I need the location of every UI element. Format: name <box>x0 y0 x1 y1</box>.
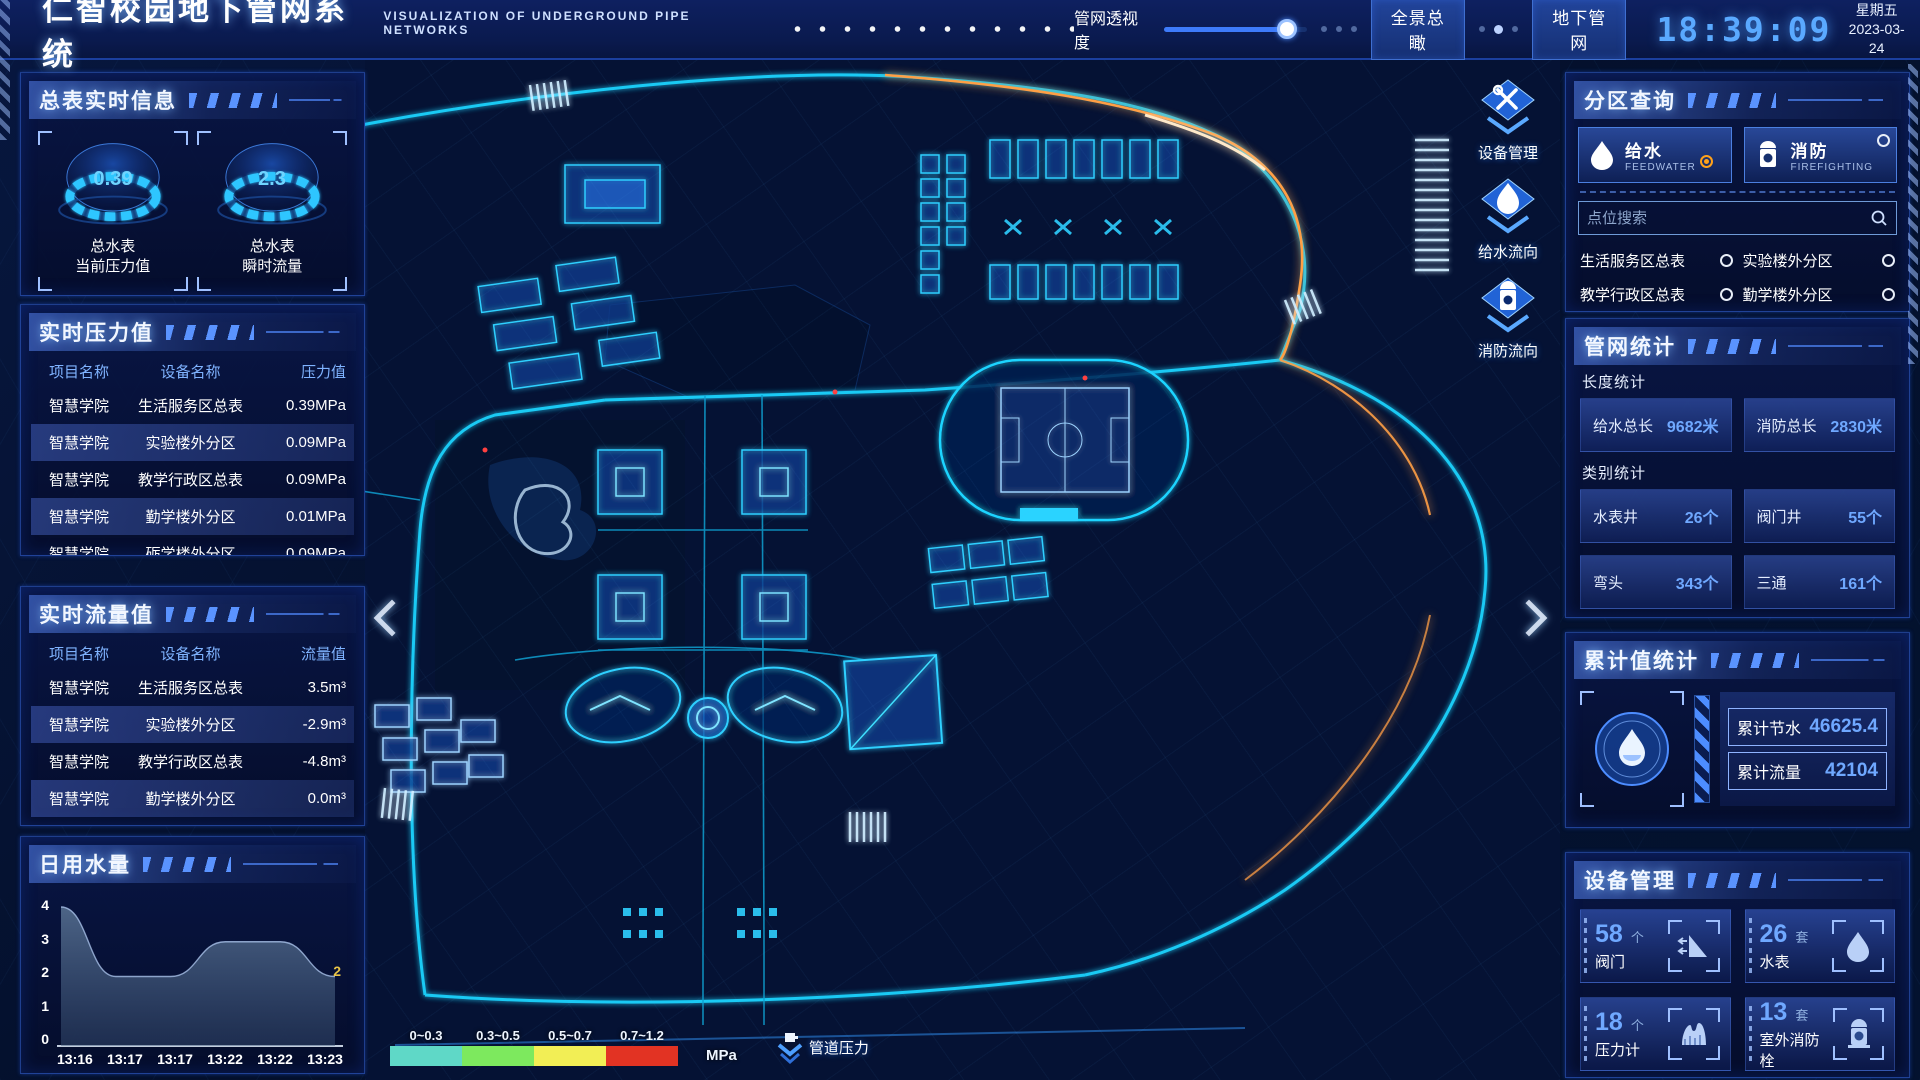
hazard-stripe-decoration <box>1694 695 1710 803</box>
last-point-label: 2 <box>333 963 341 979</box>
waterdrop-icon <box>1476 177 1540 235</box>
table-row: 智慧学院砺学楼外分区0.09MPa <box>31 535 354 556</box>
device-card-pressure-gauges: 18个 压力计 <box>1580 997 1731 1071</box>
cumulative-stats-panel: 累计值统计 累计节水46625.4 累计流量42104 <box>1565 632 1910 828</box>
slider-fill <box>1164 27 1287 32</box>
cumulative-water-saved: 累计节水46625.4 <box>1728 708 1887 746</box>
section-title: 设备管理 <box>1584 865 1676 895</box>
device-management-panel: 设备管理 58个 阀门 26套 水表 18个 压力计 <box>1565 852 1910 1078</box>
length-stats-label: 长度统计 <box>1582 371 1893 392</box>
radio-unselected-icon[interactable] <box>1882 288 1895 301</box>
legend-unit: MPa <box>706 1047 737 1064</box>
pressure-legend: 0~0.3 0.3~0.5 0.5~0.7 0.7~1.2 MPa 管道压力 <box>390 1028 869 1066</box>
zone-item[interactable]: 宿舍区泵房 <box>1743 311 1896 312</box>
waterdrop-icon <box>1589 140 1615 170</box>
map-fire-flow-button[interactable]: 消防流向 <box>1462 276 1554 361</box>
panorama-overview-button[interactable]: 全景总瞰 <box>1371 0 1465 60</box>
svg-text:2.3: 2.3 <box>258 168 286 190</box>
daily-water-panel: 日用水量 43 21 0 2 13:1613:17 13:1713:22 <box>20 836 365 1074</box>
table-row: 智慧学院生活服务区总表3.5m³ <box>31 669 354 706</box>
dashed-divider <box>1580 191 1895 193</box>
gauge-label: 总水表瞬时流量 <box>197 237 347 277</box>
device-card-valves: 58个 阀门 <box>1580 909 1731 983</box>
slashes-decoration <box>189 93 277 108</box>
radio-unselected-icon[interactable] <box>1882 254 1895 267</box>
table-row: 智慧学院勤学楼外分区0.0m³ <box>31 780 354 817</box>
search-icon[interactable] <box>1870 209 1888 227</box>
app-subtitle: VISUALIZATION OF UNDERGROUND PIPE NETWOR… <box>383 9 767 37</box>
zone-list: 生活服务区总表 实验楼外分区 教学行政区总表 勤学楼外分区 砺学楼外分区 宿舍区… <box>1580 243 1895 312</box>
table-row: 智慧学院勤学楼外分区0.01MPa <box>31 498 354 535</box>
table-row: 智慧学院教学行政区总表-4.8m³ <box>31 743 354 780</box>
waterdrop-circle-icon <box>1590 707 1674 791</box>
section-title: 日用水量 <box>39 849 131 879</box>
slider-handle[interactable] <box>1277 19 1297 39</box>
realtime-pressure-panel: 实时压力值 项目名称 设备名称 压力值 智慧学院生活服务区总表0.39MPa 智… <box>20 304 365 556</box>
radio-unselected-icon[interactable] <box>1720 288 1733 301</box>
table-row: 智慧学院实验楼外分区0.09MPa <box>31 424 354 461</box>
pressure-meter-chevron-icon <box>777 1032 803 1066</box>
stat-card: 弯头343个 <box>1580 555 1732 609</box>
area-chart-canvas <box>57 897 343 1047</box>
stat-card: 水表井26个 <box>1580 489 1732 543</box>
section-title: 累计值统计 <box>1584 645 1699 675</box>
daily-water-chart: 43 21 0 2 <box>27 897 354 1047</box>
gauge-label: 总水表当前压力值 <box>38 237 188 277</box>
campus-map-canvas <box>365 60 1560 1080</box>
gauge-flow: 2.3 总水表瞬时流量 <box>197 131 347 291</box>
table-row: 智慧学院生活服务区总表0.39MPa <box>31 387 354 424</box>
edge-decoration <box>1908 64 1918 364</box>
weekday: 星期五 <box>1847 1 1906 20</box>
x-axis: 13:1613:17 13:1713:22 13:2213:23 <box>57 1051 343 1067</box>
category-stats-label: 类别统计 <box>1582 462 1893 483</box>
gauge-pressure: 0.39 总水表当前压力值 <box>38 131 188 291</box>
gauge-icon: 0.39 <box>43 135 183 235</box>
device-card-water-meters: 26套 水表 <box>1745 909 1896 983</box>
tab-firefighting[interactable]: 消防 FIREFIGHTING <box>1744 127 1898 183</box>
dot-separator <box>1479 25 1518 34</box>
water-meter-icon <box>1841 929 1875 963</box>
legend-range: 0~0.3 <box>390 1028 462 1066</box>
legend-range: 0.5~0.7 <box>534 1028 606 1066</box>
section-title: 实时压力值 <box>39 317 154 347</box>
pipe-opacity-slider[interactable] <box>1164 27 1307 32</box>
section-header: 总表实时信息 <box>29 81 356 119</box>
section-title: 总表实时信息 <box>39 85 177 115</box>
clock: 18:39:09 <box>1656 10 1831 49</box>
zone-item[interactable]: 教学行政区总表 <box>1580 277 1733 311</box>
svg-text:0.39: 0.39 <box>93 168 132 190</box>
map-device-management-button[interactable]: 设备管理 <box>1462 78 1554 163</box>
section-title: 管网统计 <box>1584 331 1676 361</box>
app-title: 仁智校园地下管网系统 <box>42 0 369 74</box>
pipe-opacity-label: 管网透视度 <box>1074 5 1150 53</box>
stat-card: 给水总长9682米 <box>1580 398 1732 452</box>
dot-separator <box>1321 26 1357 32</box>
hydrant-icon <box>1476 276 1540 334</box>
wrench-icon <box>1476 78 1540 136</box>
hydrant-icon <box>1755 140 1781 170</box>
date-box: 星期五 2023-03-24 <box>1847 1 1906 58</box>
gauge-icon: 2.3 <box>202 135 342 235</box>
brand: 仁智校园地下管网系统 VISUALIZATION OF UNDERGROUND … <box>42 0 767 74</box>
search-box[interactable] <box>1578 201 1897 235</box>
table-row: 智慧学院砺学楼外分区2.3m³ <box>31 817 354 826</box>
pressure-gauge-icon <box>1677 1017 1711 1051</box>
water-saving-icon-card <box>1580 691 1684 807</box>
zone-query-panel: 分区查询 给水 FEEDWATER 消防 FIREFIGHTING <box>1565 72 1910 312</box>
realtime-flow-panel: 实时流量值 项目名称 设备名称 流量值 智慧学院生活服务区总表3.5m³ 智慧学… <box>20 586 365 826</box>
radio-selected-icon[interactable] <box>1700 155 1713 168</box>
zone-item[interactable]: 生活服务区总表 <box>1580 243 1733 277</box>
top-bar: 仁智校园地下管网系统 VISUALIZATION OF UNDERGROUND … <box>0 0 1920 60</box>
legend-range: 0.7~1.2 <box>606 1028 678 1066</box>
pipe-pressure-toggle[interactable]: 管道压力 <box>777 1032 869 1066</box>
flow-table: 项目名称 设备名称 流量值 智慧学院生活服务区总表3.5m³ 智慧学院实验楼外分… <box>31 637 354 826</box>
table-row: 智慧学院实验楼外分区-2.9m³ <box>31 706 354 743</box>
meter-realtime-panel: 总表实时信息 0.39 总水表当前压力值 <box>20 72 365 296</box>
tab-feedwater[interactable]: 给水 FEEDWATER <box>1578 127 1732 183</box>
stat-card: 三通161个 <box>1744 555 1896 609</box>
cumulative-values: 累计节水46625.4 累计流量42104 <box>1720 692 1895 806</box>
zone-item[interactable]: 勤学楼外分区 <box>1743 277 1896 311</box>
valve-icon <box>1677 929 1711 963</box>
device-card-outdoor-hydrants: 13套 室外消防栓 <box>1745 997 1896 1071</box>
y-axis: 43 21 0 <box>27 897 57 1047</box>
cumulative-flow: 累计流量42104 <box>1728 752 1887 790</box>
section-title: 实时流量值 <box>39 599 154 629</box>
outdoor-hydrant-icon <box>1842 1017 1876 1051</box>
radio-unselected-icon[interactable] <box>1720 254 1733 267</box>
zone-item[interactable]: 砺学楼外分区 <box>1580 311 1733 312</box>
section-title: 分区查询 <box>1584 85 1676 115</box>
map-feedwater-flow-button[interactable]: 给水流向 <box>1462 177 1554 262</box>
stat-card: 阀门井55个 <box>1744 489 1896 543</box>
pressure-table: 项目名称 设备名称 压力值 智慧学院生活服务区总表0.39MPa 智慧学院实验楼… <box>31 355 354 556</box>
zone-item[interactable]: 实验楼外分区 <box>1743 243 1896 277</box>
search-input[interactable] <box>1587 210 1870 227</box>
table-row: 智慧学院教学行政区总表0.09MPa <box>31 461 354 498</box>
campus-map[interactable] <box>365 60 1560 1080</box>
pipe-stats-panel: 管网统计 长度统计 给水总长9682米 消防总长2830米 类别统计 水表井26… <box>1565 318 1910 618</box>
date: 2023-03-24 <box>1847 20 1906 58</box>
header-dots-decoration <box>785 25 1074 33</box>
stat-card: 消防总长2830米 <box>1744 398 1896 452</box>
radio-unselected-icon[interactable] <box>1877 134 1890 147</box>
underground-pipes-button[interactable]: 地下管网 <box>1532 0 1626 60</box>
legend-range: 0.3~0.5 <box>462 1028 534 1066</box>
